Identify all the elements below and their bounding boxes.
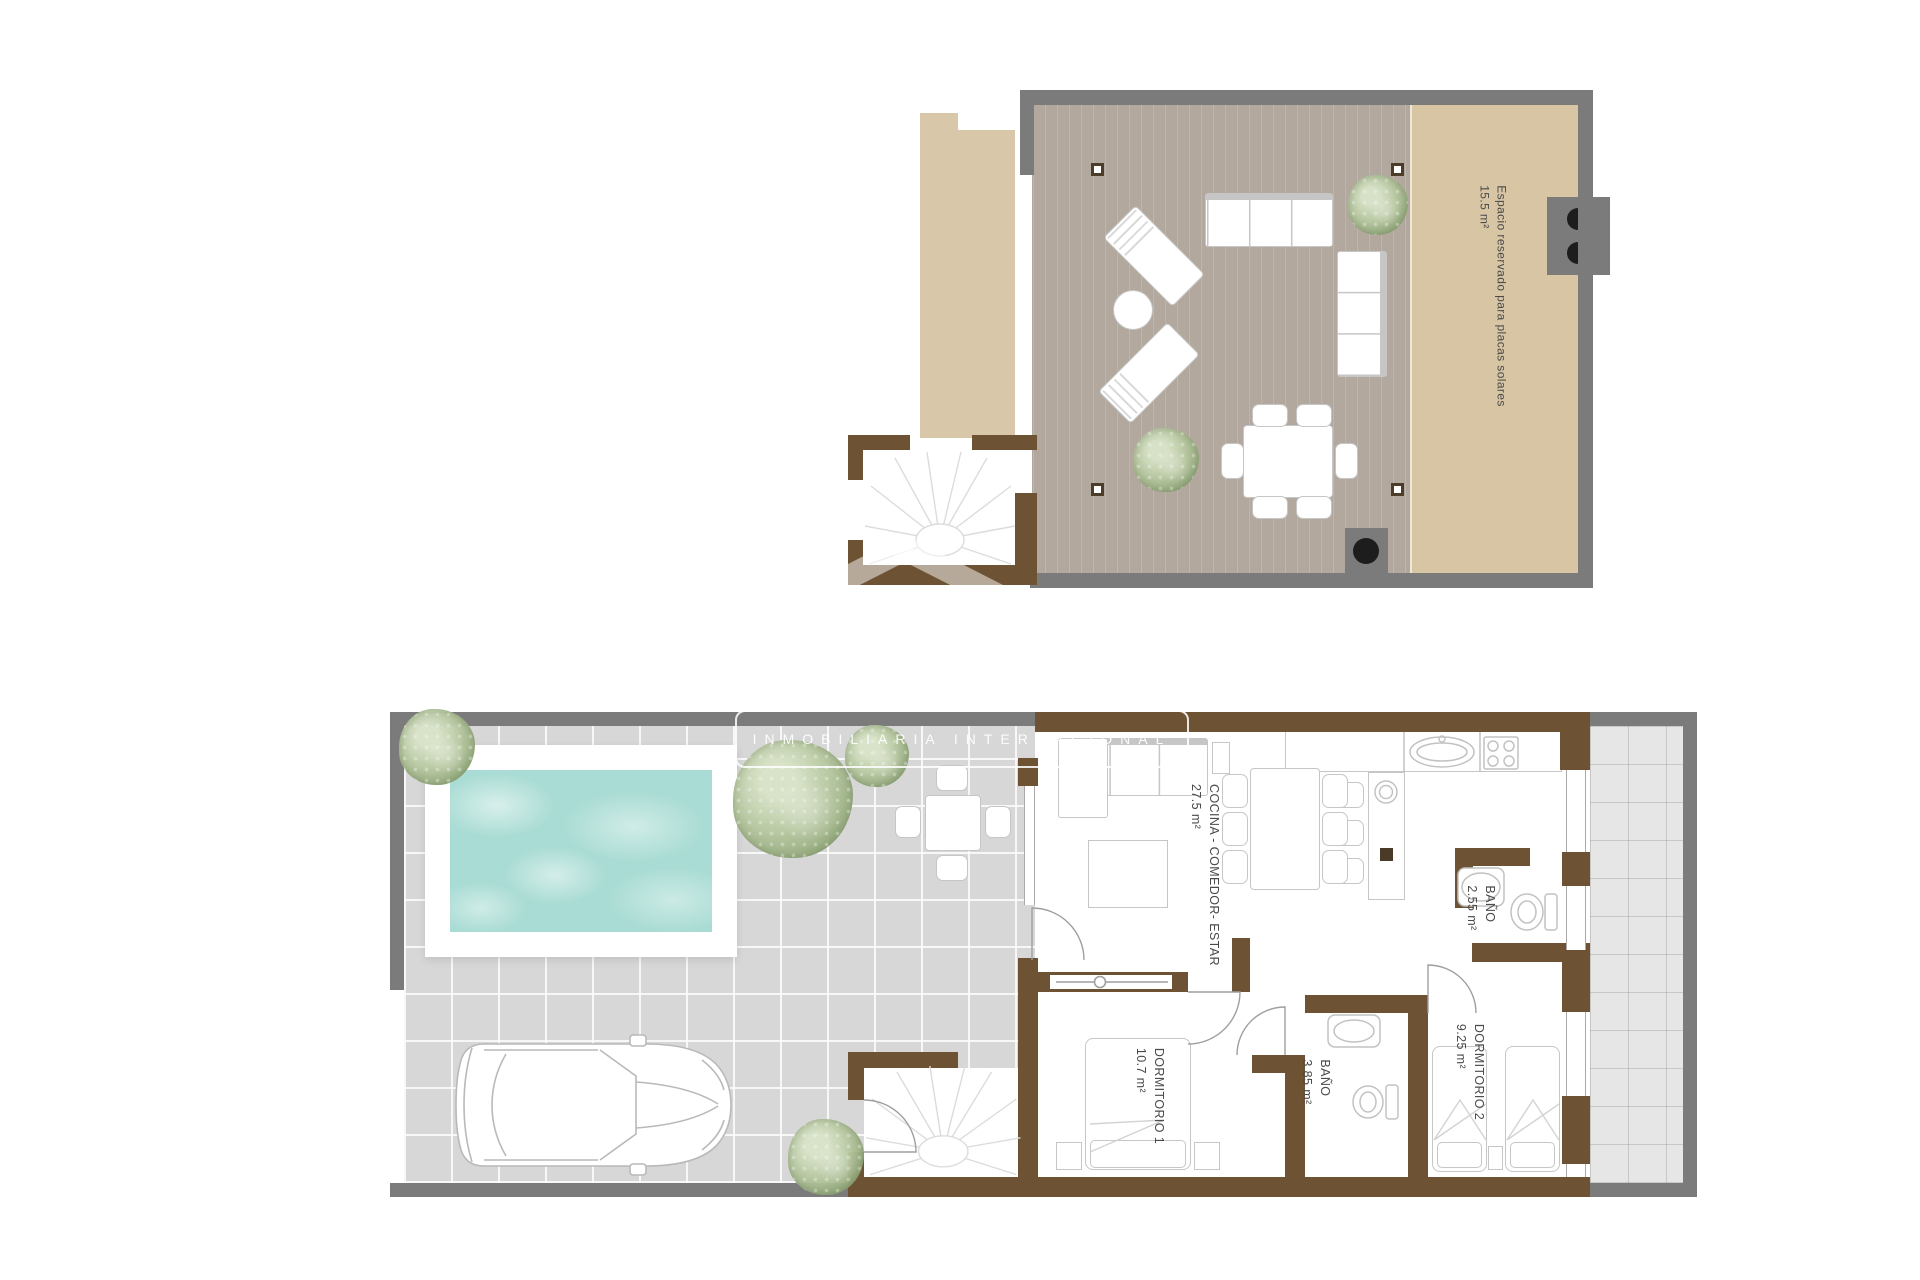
roof-wall-left-stub [1020, 90, 1034, 175]
room-label-text: DORMITORIO 2 [1470, 1024, 1488, 1120]
dining-chair [1221, 443, 1244, 479]
room-area-text: 10.7 m² [1132, 1048, 1150, 1144]
nightstand [1056, 1142, 1082, 1170]
patio-chair [985, 806, 1011, 838]
roof-wall-top [1020, 90, 1593, 105]
window [1566, 1012, 1586, 1096]
kitchen-counter [1285, 732, 1562, 772]
dining-table [1250, 768, 1320, 890]
wall-bath2-top [1305, 995, 1428, 1013]
side-terrace-paving [1590, 726, 1683, 1183]
room-label-text: BAÑO [1481, 885, 1499, 930]
window [1566, 1164, 1586, 1177]
nightstand [1488, 1146, 1503, 1170]
room-label-bano-1: BAÑO 2.55 m² [1463, 885, 1499, 930]
room-label-text: DORMITORIO 1 [1150, 1048, 1168, 1144]
tree [788, 1119, 864, 1195]
dining-chair [1322, 812, 1348, 846]
dining-chair [1296, 404, 1332, 427]
window [1566, 770, 1586, 852]
dining-chair [1222, 812, 1248, 846]
plant [1133, 428, 1199, 492]
wall-stub [1232, 938, 1250, 992]
room-label-solar: Espacio reservado para placas solares 15… [1475, 185, 1510, 407]
room-label-text: Espacio reservado para placas solares [1492, 185, 1509, 407]
wall-right [1562, 852, 1590, 886]
round-side-table [1113, 290, 1153, 330]
dining-chair [1252, 404, 1288, 427]
roof-dining-table [1243, 425, 1333, 498]
patio-chair [936, 765, 968, 791]
plot-wall-top-right [1590, 712, 1697, 726]
stair-wall [848, 1052, 864, 1100]
outdoor-sofa-right [1337, 251, 1387, 377]
plant [1348, 175, 1408, 235]
stair-wall [972, 435, 1037, 450]
dining-chair [1322, 850, 1348, 884]
plot-wall-bottom-right [1590, 1183, 1697, 1197]
dining-chair [1222, 850, 1248, 884]
dining-chair [1296, 496, 1332, 519]
wall-right [1562, 1096, 1590, 1164]
stair-wall [848, 435, 863, 480]
pergola-post [1091, 483, 1104, 496]
roof-side-terrace [920, 113, 1015, 438]
outdoor-sofa-top [1205, 193, 1333, 247]
room-label-bano-2: BAÑO 3.85 m² [1298, 1059, 1334, 1104]
room-label-text: BAÑO [1316, 1059, 1334, 1104]
room-area-text: 3.85 m² [1298, 1059, 1316, 1104]
room-area-text: 27.5 m² [1187, 784, 1205, 966]
pergola-post [1391, 163, 1404, 176]
ac-fan-icon [1353, 538, 1379, 564]
nightstand [1194, 1142, 1220, 1170]
watermark-brand-text: INMOBILIARIA INTERNACIONAL [753, 731, 1172, 747]
side-table [1212, 742, 1230, 774]
room-label-text: COCINA - COMEDOR- ESTAR [1205, 784, 1223, 966]
wall-bottom [848, 1177, 1590, 1197]
room-area-text: 9.25 m² [1452, 1024, 1470, 1120]
wall-left [1018, 958, 1038, 1197]
patio-chair [936, 855, 968, 881]
island-appliance [1380, 848, 1393, 861]
room-area-text: 2.55 m² [1463, 885, 1481, 930]
pergola-post [1091, 163, 1104, 176]
wall-bath2-dorm2 [1408, 1013, 1428, 1177]
pergola-post [1391, 483, 1404, 496]
dining-chair [1335, 443, 1358, 479]
wall-stub [1252, 1055, 1285, 1073]
sliding-glass-door [1024, 786, 1035, 905]
floor-plan-sheet: Espacio reservado para placas solares 15… [0, 0, 1920, 1280]
watermark-brand: INMOBILIARIA INTERNACIONAL [735, 710, 1189, 768]
wall-right-stub [1560, 712, 1590, 770]
room-area-text: 15.5 m² [1475, 185, 1492, 407]
swimming-pool [450, 770, 712, 932]
pocket-door [1050, 975, 1172, 989]
coffee-table [1088, 840, 1168, 908]
dining-chair [1322, 774, 1348, 808]
bed-pillow [1090, 1140, 1186, 1168]
room-label-dormitorio-2: DORMITORIO 2 9.25 m² [1452, 1024, 1488, 1120]
room-label-cocina: COCINA - COMEDOR- ESTAR 27.5 m² [1187, 784, 1223, 966]
stair-wall [848, 1052, 958, 1068]
room-label-dormitorio-1: DORMITORIO 1 10.7 m² [1132, 1048, 1168, 1144]
patio-table [925, 795, 981, 851]
kitchen-island [1368, 772, 1405, 900]
window [1566, 886, 1586, 950]
dining-chair [1252, 496, 1288, 519]
stairwell-floor [864, 1068, 1018, 1177]
tree [399, 709, 475, 785]
bed-pillow [1437, 1142, 1482, 1168]
plot-wall-bottom-left [390, 1183, 850, 1197]
roof-wall-bottom [1030, 573, 1593, 588]
plot-wall-right [1683, 712, 1697, 1197]
roof-side-terrace-notch [958, 113, 1015, 130]
dining-chair [1222, 774, 1248, 808]
patio-chair [895, 806, 921, 838]
roof-wall-right [1578, 90, 1593, 588]
bed-pillow [1510, 1142, 1555, 1168]
